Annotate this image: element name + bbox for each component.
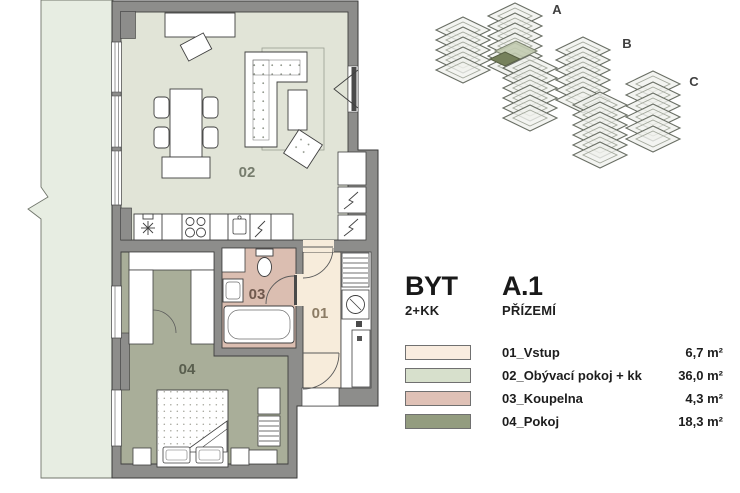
legend-label: 01_Vstup [502,345,685,360]
legend-row: 03_Koupelna 4,3 m² [405,391,723,406]
legend-swatch-02 [405,368,471,383]
floor-name: PŘÍZEMÍ [502,303,723,318]
legend-swatch-01 [405,345,471,360]
bathtub [224,306,294,343]
legend-label: 04_Pokoj [502,414,678,429]
legend-label: 03_Koupelna [502,391,685,406]
room-legend: 01_Vstup 6,7 m² 02_Obývací pokoj + kk 36… [405,345,723,429]
legend-area: 18,3 m² [678,414,723,429]
toilet [256,249,273,277]
legend-area: 4,3 m² [685,391,723,406]
room-living [121,12,348,240]
kitchen-counter [134,214,293,240]
building-label-b: B [622,36,631,51]
apartment-layout: 2+KK [405,303,502,318]
nightstand [231,448,249,465]
legend-label: 02_Obývací pokoj + kk [502,368,678,383]
legend-row: 02_Obývací pokoj + kk 36,0 m² [405,368,723,383]
washing-machine [342,290,369,319]
bath-shaft-box [222,248,245,272]
apartment-type-title: BYT [405,272,502,300]
room-label-02: 02 [239,164,256,181]
legend-swatch-04 [405,414,471,429]
dining-set [154,89,218,178]
floor-plan: 02 03 01 04 [0,0,400,493]
kitchen-sink-icon [233,216,246,234]
building-label-c: C [689,74,699,89]
room-label-01: 01 [312,305,329,322]
legend-area: 36,0 m² [678,368,723,383]
room-label-04: 04 [179,361,196,378]
wall-cabinet [165,13,235,37]
apartment-card: 02 03 01 04 A B C [0,0,740,493]
meter-shaft [342,253,369,287]
info-panel: BYT 2+KK A.1 PŘÍZEMÍ 01_Vstup 6,7 m² 02_… [405,272,723,429]
coffee-table [288,90,307,130]
entry-wardrobe [352,330,370,387]
washbasin [223,279,243,302]
bed [157,390,228,467]
room-label-03: 03 [249,286,266,303]
legend-area: 6,7 m² [685,345,723,360]
unit-number: A.1 [502,272,723,300]
garden-strip [28,0,113,478]
legend-swatch-03 [405,391,471,406]
panel-header: BYT 2+KK A.1 PŘÍZEMÍ [405,272,723,318]
utility-shafts [338,152,366,240]
site-diagram: A B C [420,0,740,180]
legend-row: 01_Vstup 6,7 m² [405,345,723,360]
nightstand [133,448,151,465]
switch-box [356,321,362,327]
legend-row: 04_Pokoj 18,3 m² [405,414,723,429]
building-label-a: A [552,2,562,17]
sink-symbol [141,221,155,235]
